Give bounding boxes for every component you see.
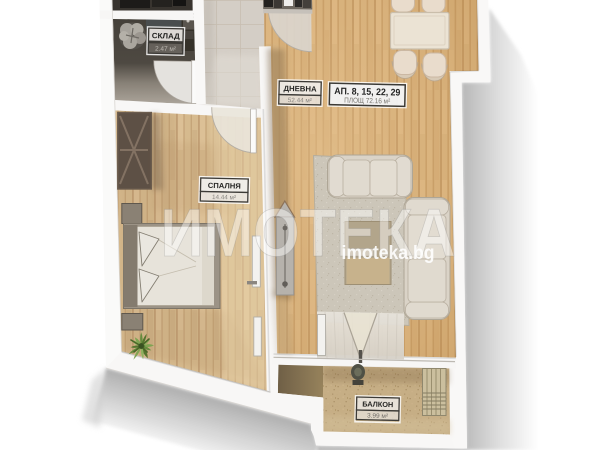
svg-text:ПЛОЩ 72.16 м²: ПЛОЩ 72.16 м² xyxy=(344,95,391,105)
svg-text:imoteka.bg: imoteka.bg xyxy=(342,243,435,264)
svg-text:3.99 м²: 3.99 м² xyxy=(367,413,388,420)
svg-text:ДНЕВНА: ДНЕВНА xyxy=(283,84,317,94)
svg-text:СПАЛНЯ: СПАЛНЯ xyxy=(208,181,241,191)
svg-text:2.47 м²: 2.47 м² xyxy=(155,46,177,53)
svg-text:52.44 м²: 52.44 м² xyxy=(288,97,312,105)
svg-text:СКЛАД: СКЛАД xyxy=(152,31,181,41)
svg-text:БАЛКОН: БАЛКОН xyxy=(362,399,393,409)
svg-text:14.44 м²: 14.44 м² xyxy=(212,194,236,202)
